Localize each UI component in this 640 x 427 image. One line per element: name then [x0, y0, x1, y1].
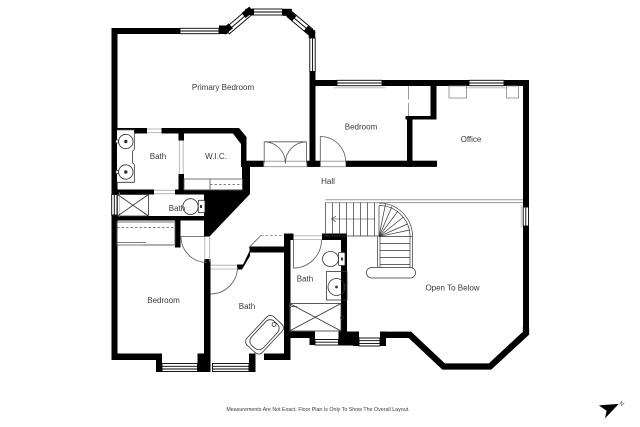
svg-text:Bath: Bath — [297, 275, 313, 284]
svg-text:Primary Bedroom: Primary Bedroom — [192, 83, 255, 92]
svg-text:Hall: Hall — [321, 177, 335, 186]
svg-text:Bath: Bath — [150, 152, 166, 161]
svg-text:Open To Below: Open To Below — [425, 284, 479, 293]
svg-text:W.I.C.: W.I.C. — [205, 152, 227, 161]
svg-text:Bedroom: Bedroom — [147, 296, 180, 305]
svg-text:Bath: Bath — [169, 204, 185, 213]
svg-text:Measurements Are Not Exact. Fl: Measurements Are Not Exact. Floor Plan I… — [226, 407, 409, 413]
svg-text:Bath: Bath — [239, 302, 255, 311]
svg-text:Bedroom: Bedroom — [345, 123, 378, 132]
svg-text:Office: Office — [461, 135, 482, 144]
